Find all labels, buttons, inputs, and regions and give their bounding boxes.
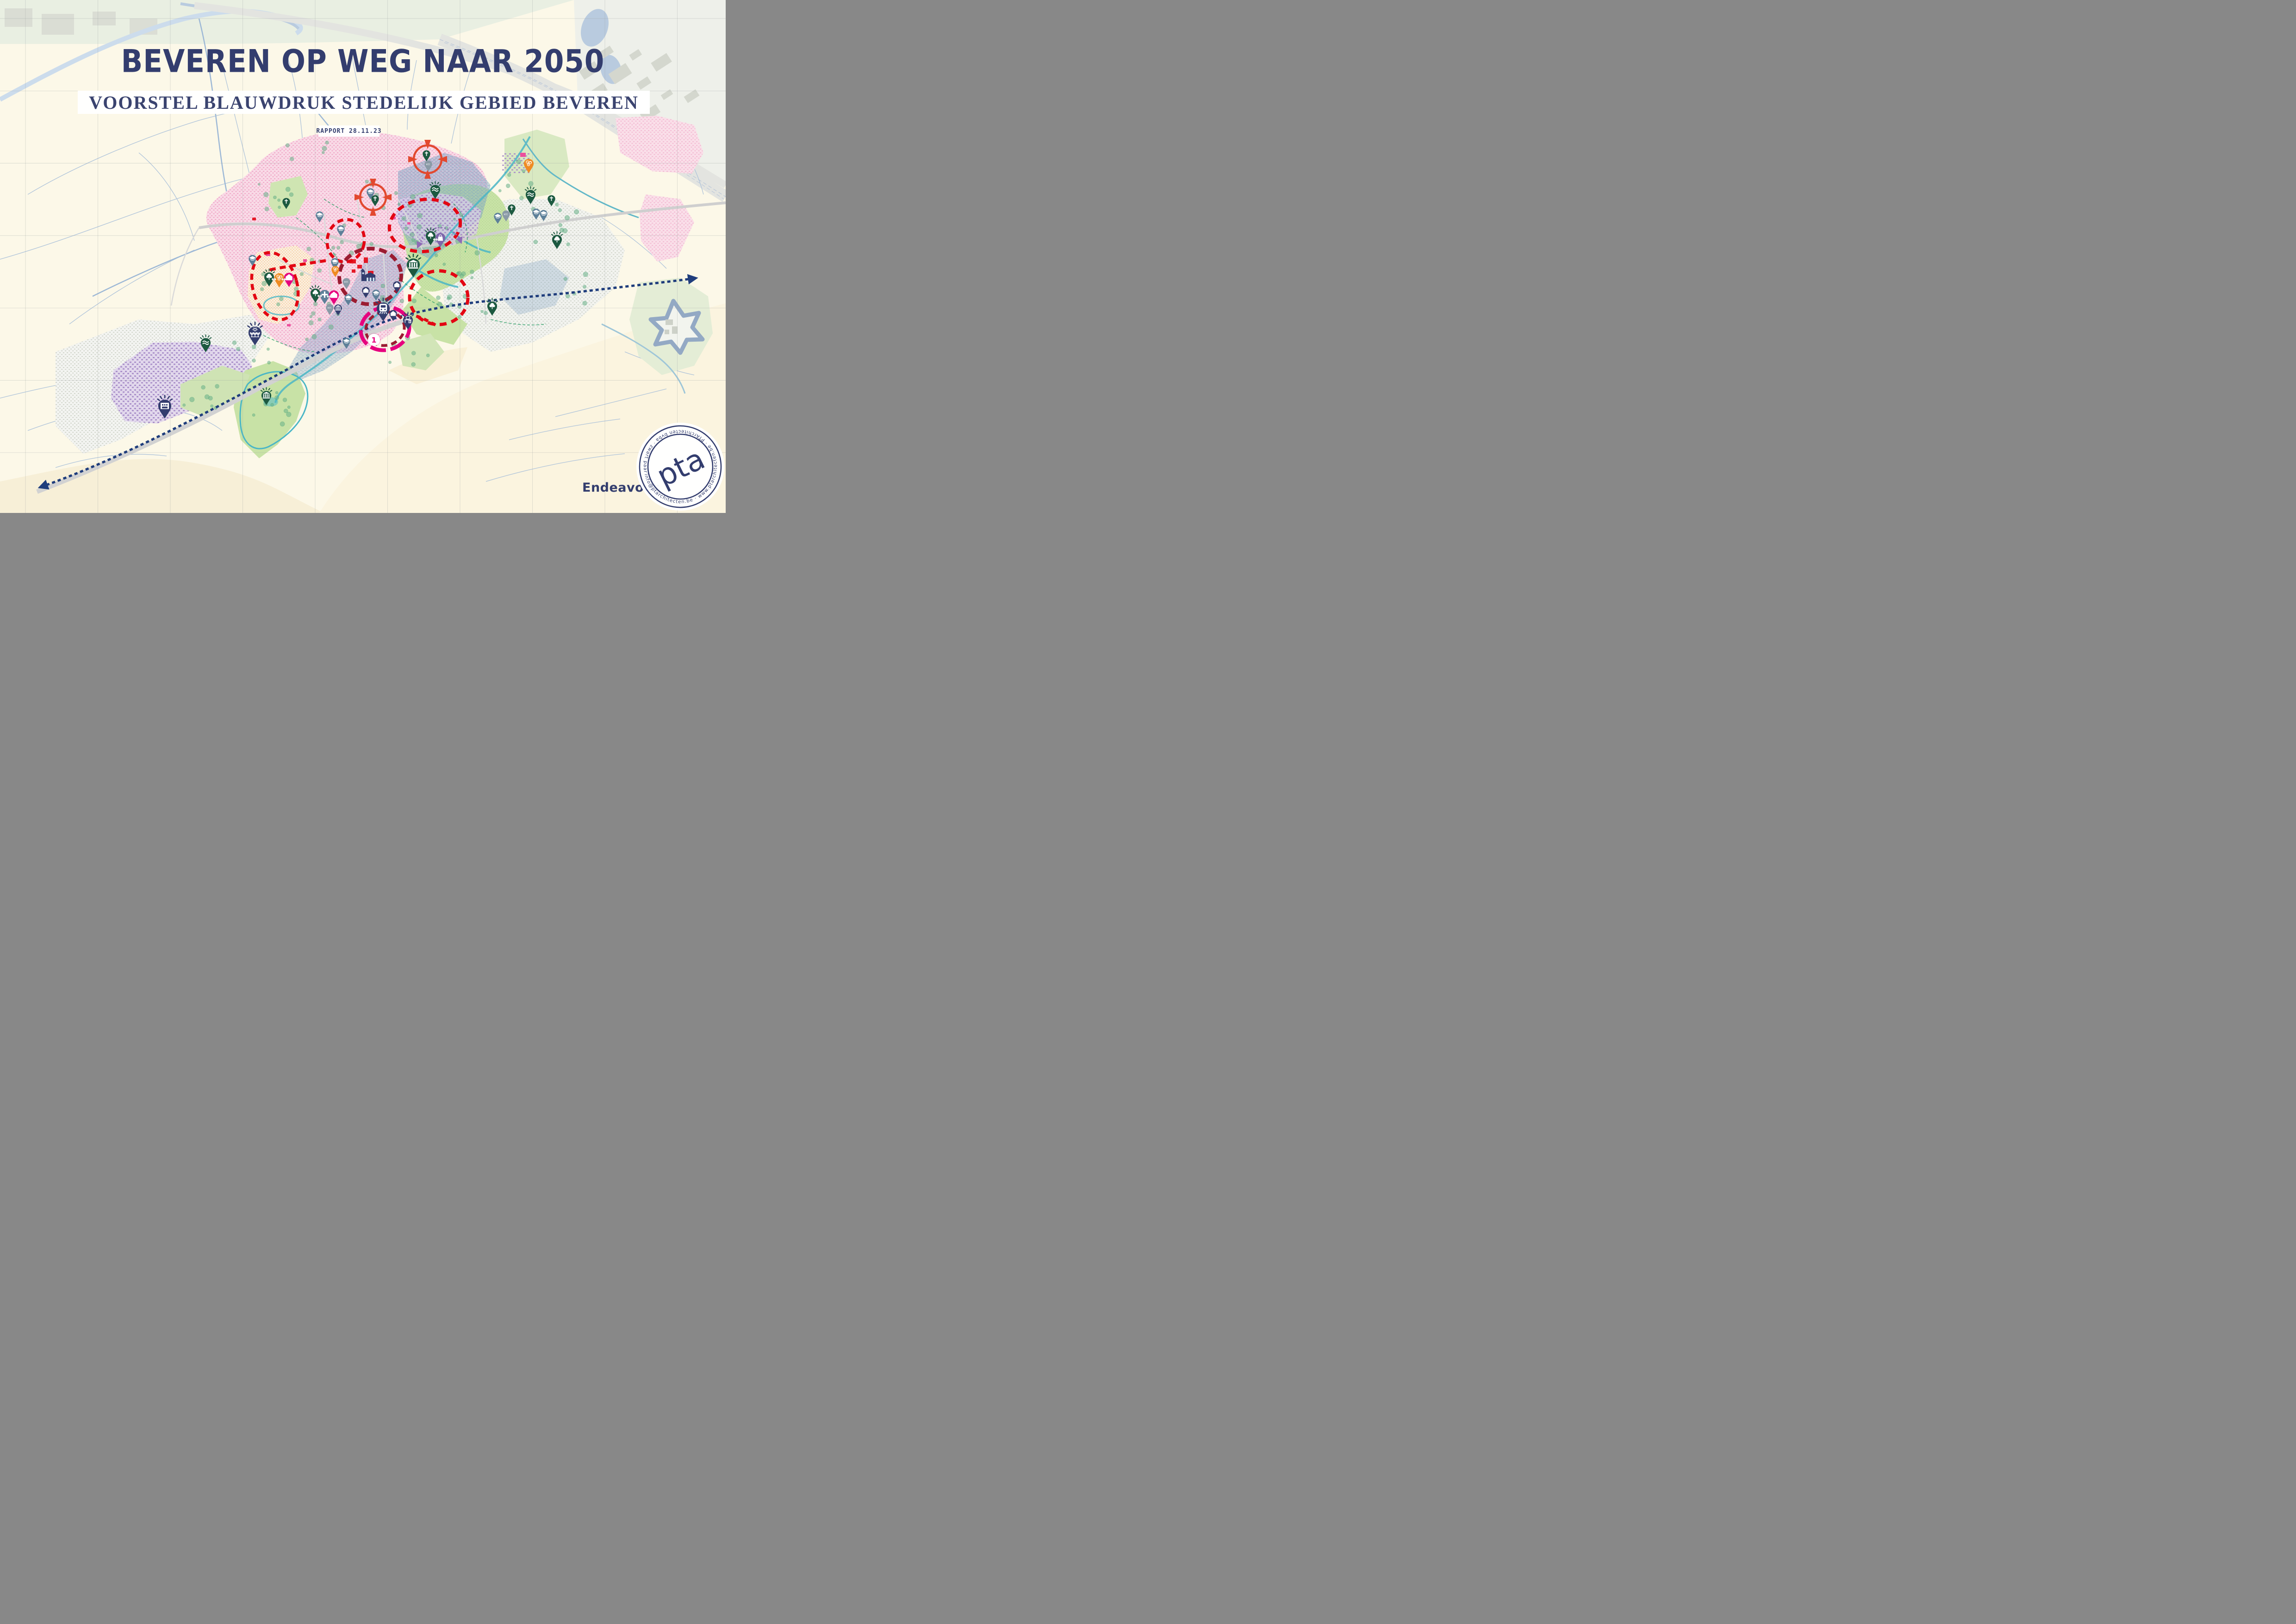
pta-stamp-logo: info@ptarchitecten.be · www.ptarchitecte… (635, 421, 726, 512)
poster-map-beveren: WZCWZCWZCWZC↔↔↔↔↔1 BEVEREN OP WEG NAAR 2… (0, 0, 726, 513)
report-chip: RAPPORT 28.11.23 (318, 125, 380, 137)
poster-subtitle: VOORSTEL BLAUWDRUK STEDELIJK GEBIED BEVE… (89, 92, 639, 113)
subtitle-band: VOORSTEL BLAUWDRUK STEDELIJK GEBIED BEVE… (78, 91, 650, 114)
report-label: RAPPORT 28.11.23 (316, 128, 381, 135)
poster-title: BEVEREN OP WEG NAAR 2050 (11, 43, 715, 80)
